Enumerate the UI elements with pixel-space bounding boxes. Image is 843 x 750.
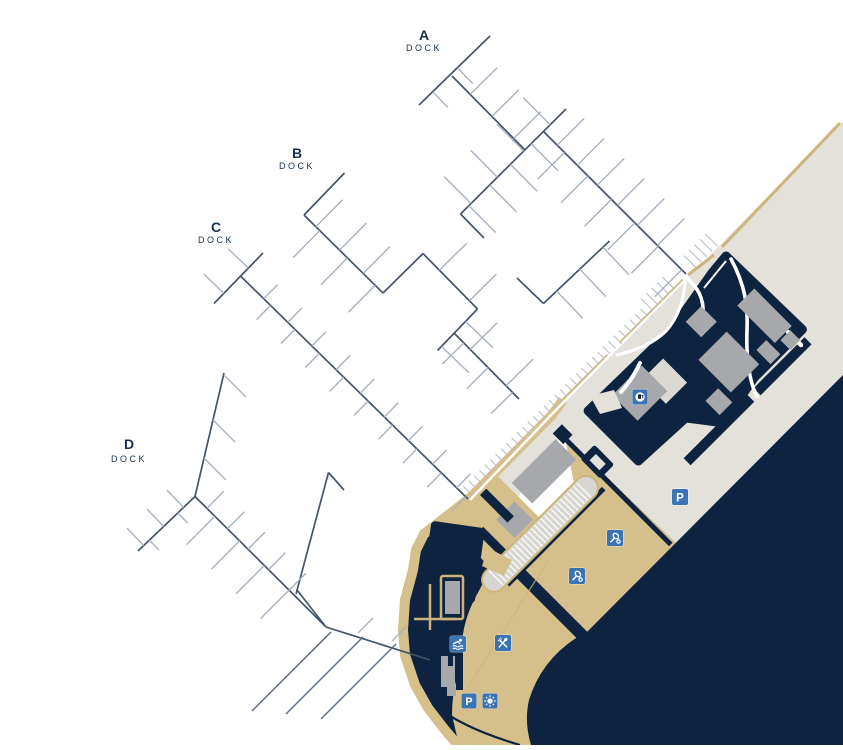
svg-text:DOCK: DOCK (198, 235, 234, 245)
svg-text:C: C (211, 219, 221, 235)
svg-text:DOCK: DOCK (406, 43, 442, 53)
svg-text:D: D (124, 436, 134, 452)
svg-text:DOCK: DOCK (111, 454, 147, 464)
svg-text:B: B (292, 145, 302, 161)
svg-text:P: P (676, 492, 684, 504)
svg-text:DOCK: DOCK (279, 161, 315, 171)
svg-text:P: P (465, 696, 472, 708)
svg-text:A: A (419, 27, 429, 43)
